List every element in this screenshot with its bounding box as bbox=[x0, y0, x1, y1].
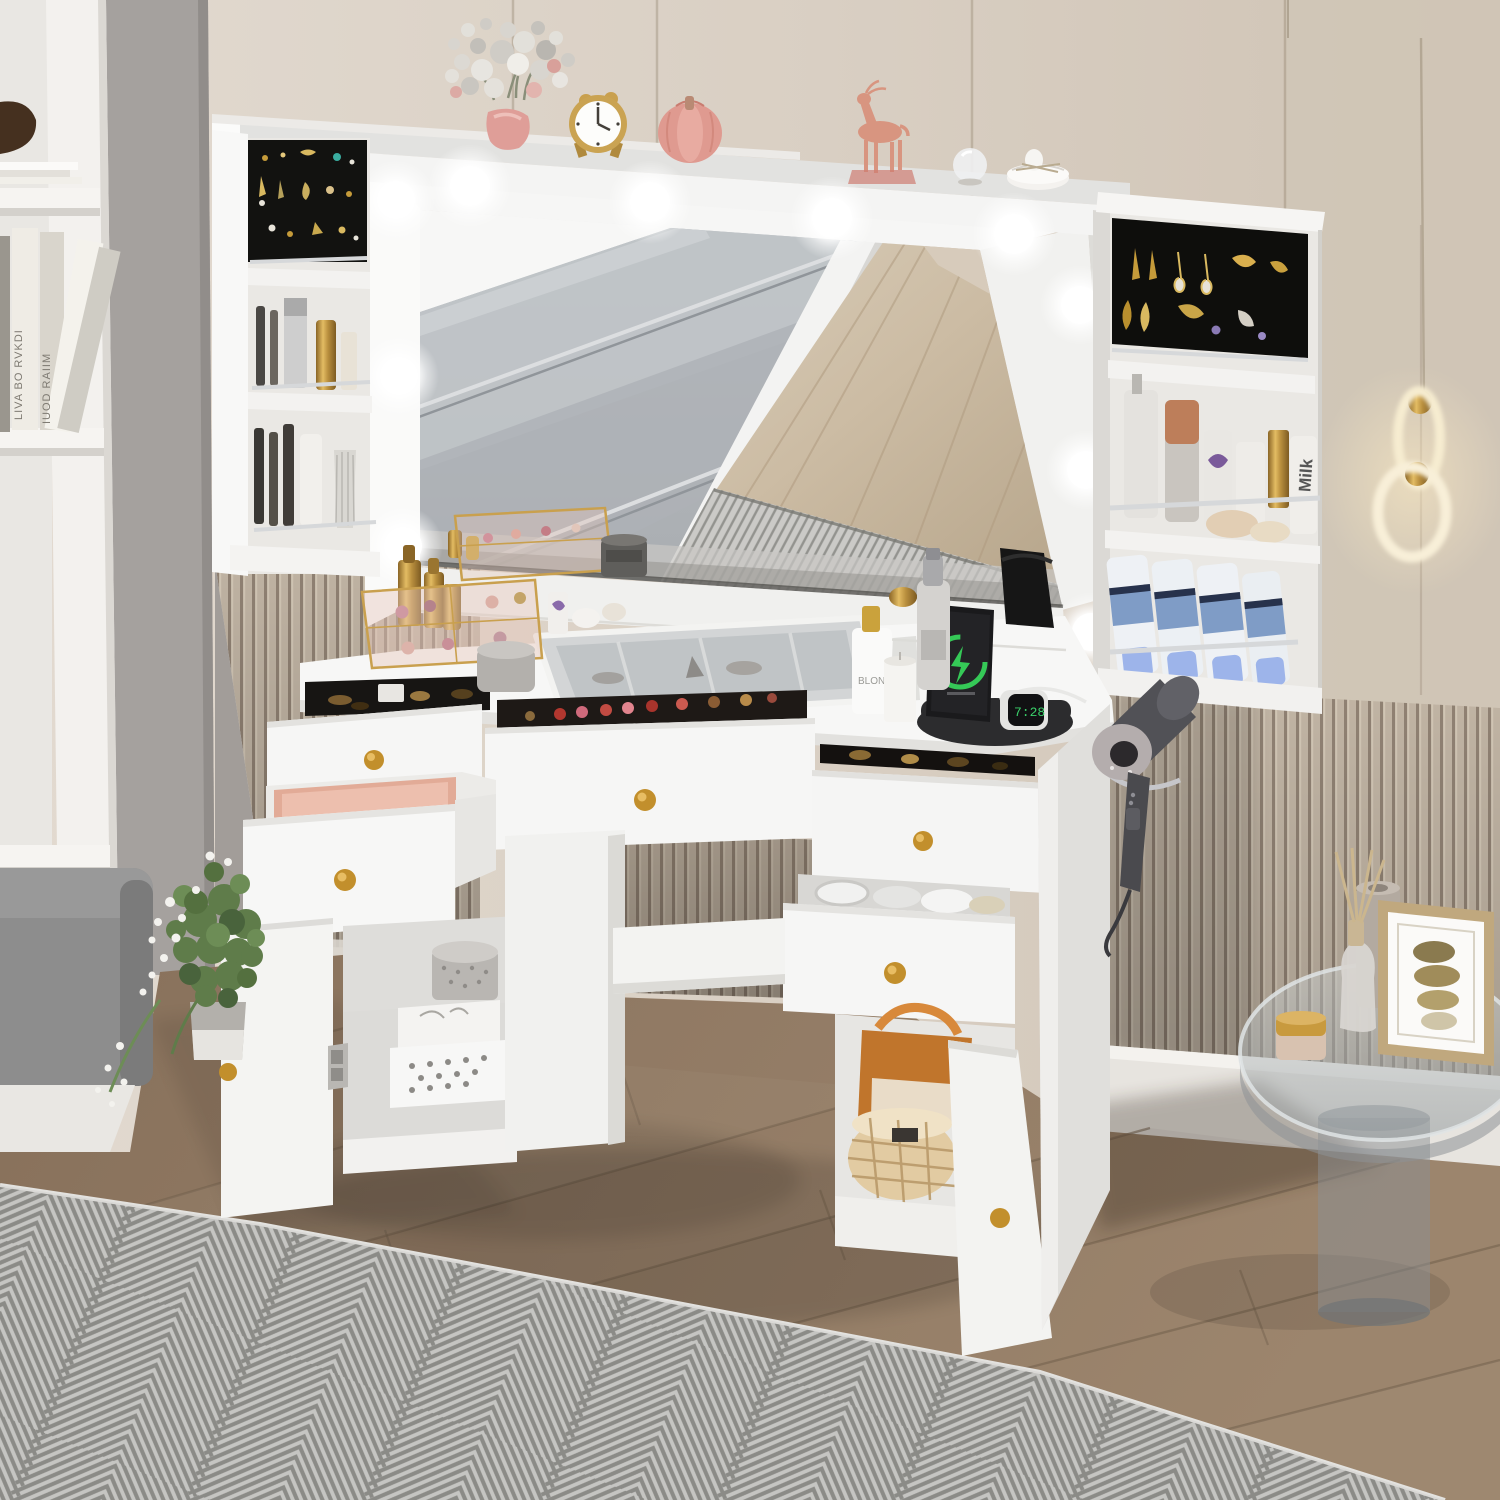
svg-text:BLON: BLON bbox=[858, 676, 885, 687]
svg-text:IUOD RAIIM: IUOD RAIIM bbox=[41, 353, 53, 424]
svg-text:Milk: Milk bbox=[1295, 458, 1316, 493]
svg-text:7:28: 7:28 bbox=[1014, 705, 1045, 720]
svg-text:LIVA BO RVKDI: LIVA BO RVKDI bbox=[13, 329, 25, 420]
